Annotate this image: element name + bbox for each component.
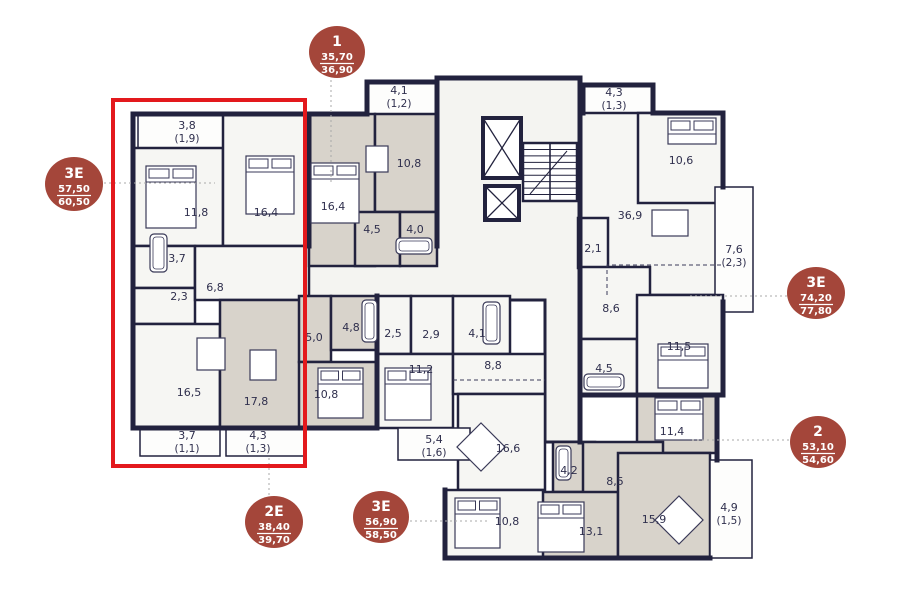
badge-apt-3e-left[interactable]: 3E57,5060,50	[45, 157, 103, 211]
room-area-label-apt-3e-left-2-3: 2,3	[170, 290, 188, 303]
badge-apartment-type: 3E	[371, 499, 390, 515]
bed-frame	[455, 498, 500, 548]
staircase	[523, 143, 577, 201]
room-area-label-apt-3e-top-right-11-5: 11,5	[667, 340, 692, 353]
badge-apartment-type: 2	[813, 424, 823, 440]
badge-living-area: 35,70	[321, 52, 353, 63]
badge-apt-3e-right[interactable]: 3E74,2077,80	[787, 267, 845, 319]
room-area-label-apt-3e-bottom-2-9: 2,9	[422, 328, 440, 341]
room-area-label-apt-3e-top-right-10-6: 10,6	[669, 154, 694, 167]
table-icon	[197, 338, 225, 370]
room-area-label-apt-3e-bottom-11-2: 11,2	[409, 363, 434, 376]
room-area-label-apt-1-16-4: 16,4	[321, 200, 346, 213]
room-area-label-apt-3e-left-6-8: 6,8	[206, 281, 224, 294]
room-area-label-apt-1-4-1: 4,1	[390, 84, 408, 97]
room-area-label-apt-1-4-0: 4,0	[406, 223, 424, 236]
bed-icon	[455, 498, 500, 548]
badge-living-area: 56,90	[365, 517, 397, 528]
room-area-label-apt-1-4-5: 4,5	[363, 223, 381, 236]
room-area-sublabel-apt-3e-left-3-7: (1,1)	[175, 443, 200, 455]
badge-apartment-type: 3E	[64, 166, 83, 182]
badge-apartment-type: 3E	[806, 275, 825, 291]
badge-total-area: 36,90	[321, 65, 353, 76]
badge-living-area: 74,20	[800, 293, 832, 304]
room-apt-2-15-9	[618, 453, 710, 558]
room-area-label-apt-3e-left-16-5: 16,5	[177, 386, 202, 399]
badge-living-area: 57,50	[58, 184, 90, 195]
room-area-label-apt-3e-top-right-7-6: 7,6	[725, 243, 743, 256]
badge-living-area: 38,40	[258, 522, 290, 533]
room-area-label-apt-3e-left-3-8: 3,8	[178, 119, 196, 132]
room-area-label-apt-2-13-1: 13,1	[579, 525, 604, 538]
room-area-sublabel-apt-2e-4-3: (1,3)	[246, 443, 271, 455]
room-area-label-apt-2-15-9: 15,9	[642, 513, 667, 526]
bed-frame	[668, 118, 716, 144]
room-area-label-apt-3e-bottom-10-8: 10,8	[495, 515, 520, 528]
table-icon	[366, 146, 388, 172]
room-area-sublabel-apt-3e-top-right-4-3: (1,3)	[602, 100, 627, 112]
bed-icon	[668, 118, 716, 144]
table-icon	[652, 210, 688, 236]
bathtub-icon	[584, 374, 624, 390]
badge-apt-3e-bottom[interactable]: 3E56,9058,50	[353, 491, 409, 543]
badge-total-area: 54,60	[802, 455, 834, 466]
badge-total-area: 77,80	[800, 306, 832, 317]
room-area-label-apt-3e-bottom-16-6: 16,6	[496, 442, 521, 455]
badge-apt-2e[interactable]: 2E38,4039,70	[245, 496, 303, 548]
tub-outer	[584, 374, 624, 390]
badge-living-area: 53,10	[802, 442, 834, 453]
bathtub-icon	[362, 300, 377, 342]
tub-outer	[362, 300, 377, 342]
room-area-sublabel-apt-2-4-9: (1,5)	[717, 515, 742, 527]
room-area-label-apt-2e-4-3: 4,3	[249, 429, 267, 442]
tub-outer	[396, 238, 432, 254]
floor-plan: 3,8(1,9)11,816,43,72,36,816,53,7(1,1)17,…	[0, 0, 897, 616]
room-area-label-apt-3e-top-right-4-3: 4,3	[605, 86, 623, 99]
room-area-label-apt-2e-4-8: 4,8	[342, 321, 360, 334]
room-area-label-apt-1-10-8: 10,8	[397, 157, 422, 170]
room-area-label-apt-2e-17-8: 17,8	[244, 395, 269, 408]
room-apt-3e-bottom-2-9	[411, 296, 453, 354]
room-area-label-apt-3e-top-right-36-9: 36,9	[618, 209, 643, 222]
room-area-label-apt-2-4-2: 4,2	[560, 464, 578, 477]
badge-apartment-type: 1	[332, 34, 342, 50]
tub-outer	[150, 234, 167, 272]
bed-icon	[538, 502, 584, 552]
room-area-label-apt-3e-top-right-4-5: 4,5	[595, 362, 613, 375]
room-area-label-apt-3e-bottom-4-1: 4,1	[468, 327, 486, 340]
room-area-label-apt-2-4-9: 4,9	[720, 501, 738, 514]
room-area-label-apt-2e-5-0: 5,0	[305, 331, 323, 344]
room-area-sublabel-apt-3e-left-3-8: (1,9)	[175, 133, 200, 145]
badge-apartment-type: 2E	[264, 504, 283, 520]
bathtub-icon	[396, 238, 432, 254]
room-area-label-apt-3e-bottom-2-5: 2,5	[384, 327, 402, 340]
room-area-label-apt-3e-left-3-7: 3,7	[168, 252, 186, 265]
room-area-label-apt-3e-top-right-2-1: 2,1	[584, 242, 602, 255]
badge-apt-1[interactable]: 135,7036,90	[309, 26, 365, 78]
badge-total-area: 60,50	[58, 197, 90, 208]
bed-frame	[311, 163, 359, 223]
room-apt-1-4-5	[355, 212, 400, 266]
room-area-label-apt-2-8-5: 8,5	[606, 475, 624, 488]
bed-frame	[538, 502, 584, 552]
room-area-sublabel-apt-3e-top-right-7-6: (2,3)	[722, 257, 747, 269]
floor-plan-page: 3,8(1,9)11,816,43,72,36,816,53,7(1,1)17,…	[0, 0, 897, 616]
elevator-shaft-1	[483, 118, 521, 178]
room-area-label-apt-3e-left-11-8: 11,8	[184, 206, 209, 219]
floor-plan-svg: 3,8(1,9)11,816,43,72,36,816,53,7(1,1)17,…	[0, 0, 897, 616]
room-area-label-apt-3e-left-16-4: 16,4	[254, 206, 279, 219]
bathtub-icon	[150, 234, 167, 272]
room-area-label-apt-3e-top-right-8-6: 8,6	[602, 302, 620, 315]
badge-total-area: 39,70	[258, 535, 290, 546]
room-area-sublabel-apt-3e-bottom-5-4: (1,6)	[422, 447, 447, 459]
room-area-label-apt-3e-bottom-8-8: 8,8	[484, 359, 502, 372]
badge-total-area: 58,50	[365, 530, 397, 541]
room-apt-3e-bottom-4-1	[453, 296, 510, 354]
room-area-label-apt-2-11-4: 11,4	[660, 425, 685, 438]
room-area-sublabel-apt-1-4-1: (1,2)	[387, 98, 412, 110]
bed-icon	[311, 163, 359, 223]
badge-apt-2[interactable]: 253,1054,60	[790, 416, 846, 468]
room-area-label-apt-2e-10-8: 10,8	[314, 388, 339, 401]
elevator-shaft-2	[485, 186, 519, 220]
room-area-label-apt-3e-left-3-7: 3,7	[178, 429, 196, 442]
table-icon	[250, 350, 276, 380]
room-area-label-apt-3e-bottom-5-4: 5,4	[425, 433, 443, 446]
room-apt-3e-bottom-2-5	[377, 296, 411, 354]
